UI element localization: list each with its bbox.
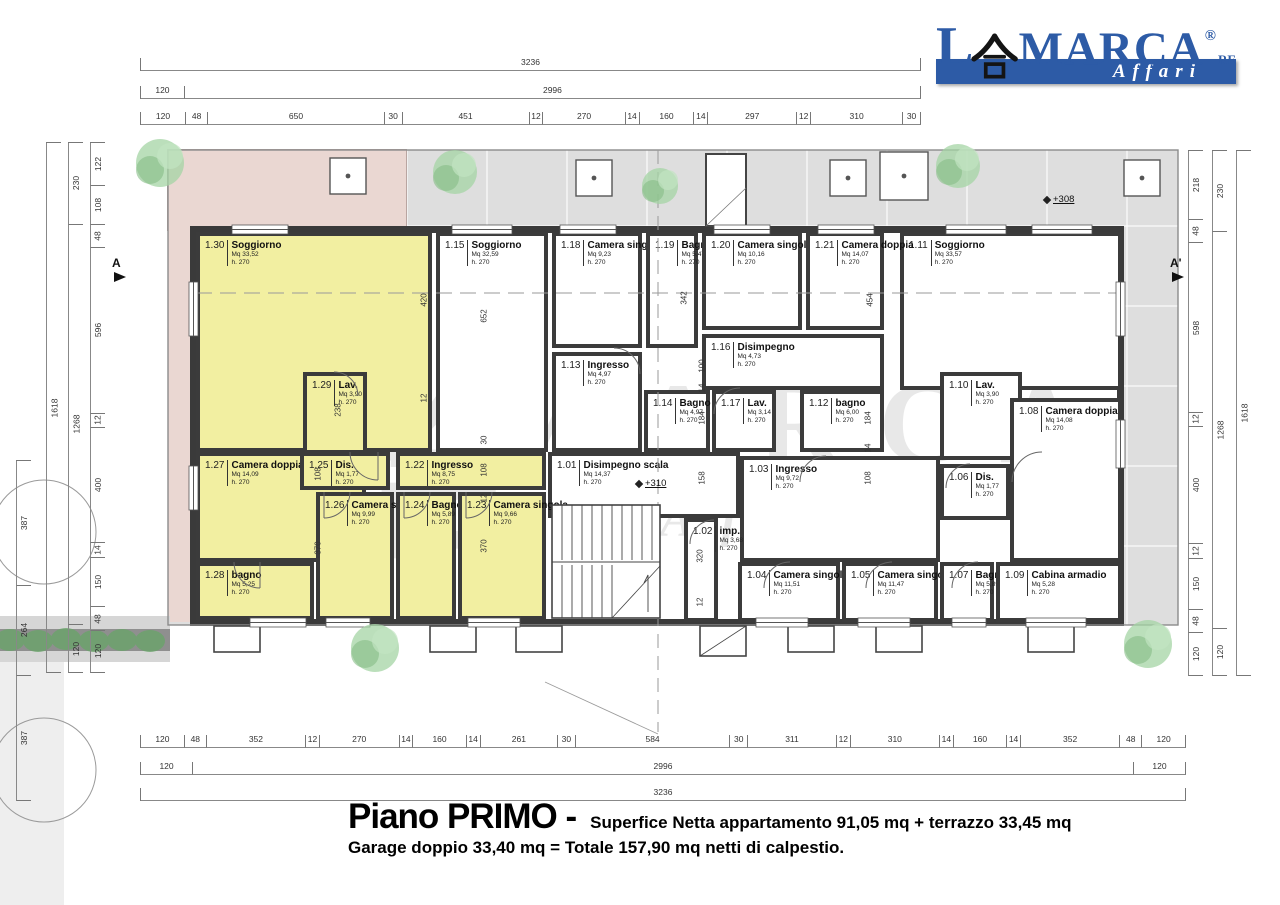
level-diamond-icon [635, 479, 643, 487]
interior-dim: 370 [314, 541, 323, 554]
interior-dim: 30 [480, 436, 489, 445]
level-marker-stairs: +310 [636, 478, 666, 489]
interior-dim: 652 [480, 309, 489, 322]
dim-row-bottom-detail: 1204835212270141601426130584303111231014… [140, 735, 1186, 748]
dim-row-top-sub: 1202996 [140, 86, 921, 99]
interior-dim: 12 [696, 598, 705, 607]
interior-dim: 184 [698, 411, 707, 424]
dim-col-far-left: 387264387 [16, 460, 31, 801]
interior-dim: 158 [698, 471, 707, 484]
dim-col-right-sub: 2301268120 [1212, 150, 1227, 676]
interior-dim: 342 [680, 291, 689, 304]
interior-dim: 12 [480, 494, 489, 503]
dim-col-left-sub: 2301268120 [68, 142, 83, 673]
interior-dim: 454 [866, 293, 875, 306]
section-arrow-icon [112, 271, 128, 283]
interior-dim: 184 [864, 411, 873, 424]
dim-row-top-detail: 12048650304511227014160142971231030 [140, 112, 921, 125]
interior-dim: 320 [696, 549, 705, 562]
interior-dim: 420 [420, 293, 429, 306]
floor-plan-sheet: 1.30 Soggiorno Mq 33,52 h. 270 1.15 Sogg… [0, 0, 1280, 905]
level-marker-terrace: +308 [1044, 194, 1074, 205]
dim-col-right-detail: 21848598124001215048120 [1188, 150, 1203, 676]
interior-dim: 14 [864, 444, 873, 453]
level-diamond-icon [1043, 195, 1051, 203]
dim-col-left-overall: 1618 [46, 142, 61, 673]
dim-col-left-detail: 12210848596124001415048120 [90, 142, 105, 673]
interior-dim: 108 [480, 463, 489, 476]
dim-row-top-overall: 3236 [140, 58, 921, 71]
interior-dim: 14 [698, 384, 707, 393]
dim-col-right-overall: 1618 [1236, 150, 1251, 676]
dimensions-layer: 3236 1202996 120486503045112270141601429… [0, 0, 1280, 905]
section-marker-a-prime: A' [1170, 256, 1186, 283]
dim-row-bottom-overall: 3236 [140, 788, 1186, 801]
interior-dim: 370 [480, 539, 489, 552]
interior-dim: 238 [334, 403, 343, 416]
interior-dim: 108 [864, 471, 873, 484]
section-marker-a: A [112, 256, 128, 283]
interior-dim: 12 [420, 394, 429, 403]
dim-row-bottom-sub: 1202996120 [140, 762, 1186, 775]
interior-dim: 108 [314, 467, 323, 480]
section-arrow-icon [1170, 271, 1186, 283]
interior-dim: 100 [698, 359, 707, 372]
